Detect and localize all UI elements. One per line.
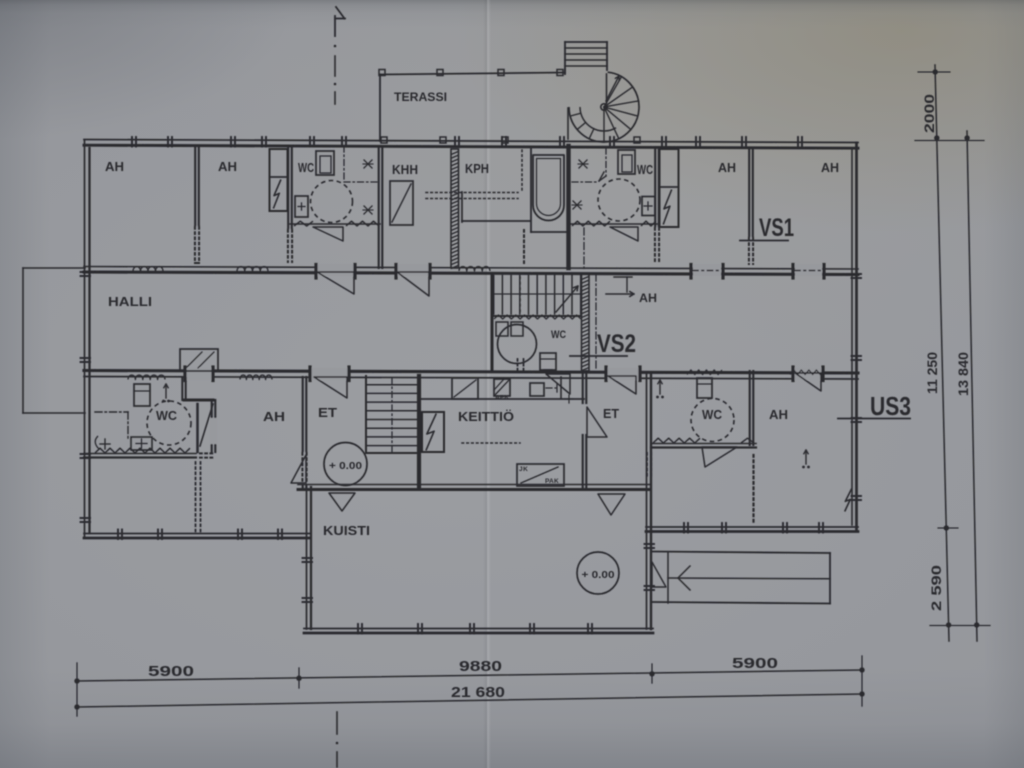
svg-text:PAK: PAK <box>545 478 559 485</box>
svg-text:+ 0.00: + 0.00 <box>582 569 615 581</box>
svg-text:2 590: 2 590 <box>928 565 944 611</box>
svg-text:TERASSI: TERASSI <box>394 92 447 104</box>
svg-text:VS1: VS1 <box>759 214 794 242</box>
svg-text:WC: WC <box>637 163 653 177</box>
svg-text:AH: AH <box>105 159 124 174</box>
svg-text:2000: 2000 <box>921 94 937 133</box>
svg-text:AH: AH <box>218 159 237 174</box>
svg-text:AH: AH <box>263 409 285 424</box>
svg-text:KEITTIÖ: KEITTIÖ <box>458 409 514 424</box>
svg-text:ET: ET <box>603 407 619 421</box>
svg-text:11 250: 11 250 <box>924 352 940 394</box>
svg-text:21 680: 21 680 <box>451 684 505 701</box>
svg-text:WC: WC <box>702 408 722 422</box>
svg-text:AH: AH <box>821 160 839 175</box>
svg-text:AH: AH <box>718 160 736 175</box>
svg-text:WC: WC <box>551 329 566 341</box>
svg-text:WC: WC <box>298 161 314 175</box>
svg-text:KHH: KHH <box>392 162 418 177</box>
svg-text:+ 0.00: + 0.00 <box>329 460 362 472</box>
svg-text:13 840: 13 840 <box>955 352 971 396</box>
svg-text:9880: 9880 <box>459 658 502 675</box>
svg-text:JK: JK <box>519 466 528 473</box>
svg-text:APK: APK <box>495 395 509 401</box>
svg-text:HALLI: HALLI <box>108 294 152 309</box>
svg-text:AH: AH <box>769 407 788 422</box>
svg-text:KPH: KPH <box>465 161 489 176</box>
svg-text:VS2: VS2 <box>597 330 636 358</box>
svg-text:WC: WC <box>156 408 178 423</box>
svg-text:AH: AH <box>639 293 657 305</box>
svg-text:5900: 5900 <box>148 663 194 680</box>
svg-text:KUISTI: KUISTI <box>323 523 370 538</box>
svg-text:ET: ET <box>318 405 337 420</box>
svg-text:5900: 5900 <box>732 655 778 672</box>
svg-text:US3: US3 <box>870 391 911 421</box>
